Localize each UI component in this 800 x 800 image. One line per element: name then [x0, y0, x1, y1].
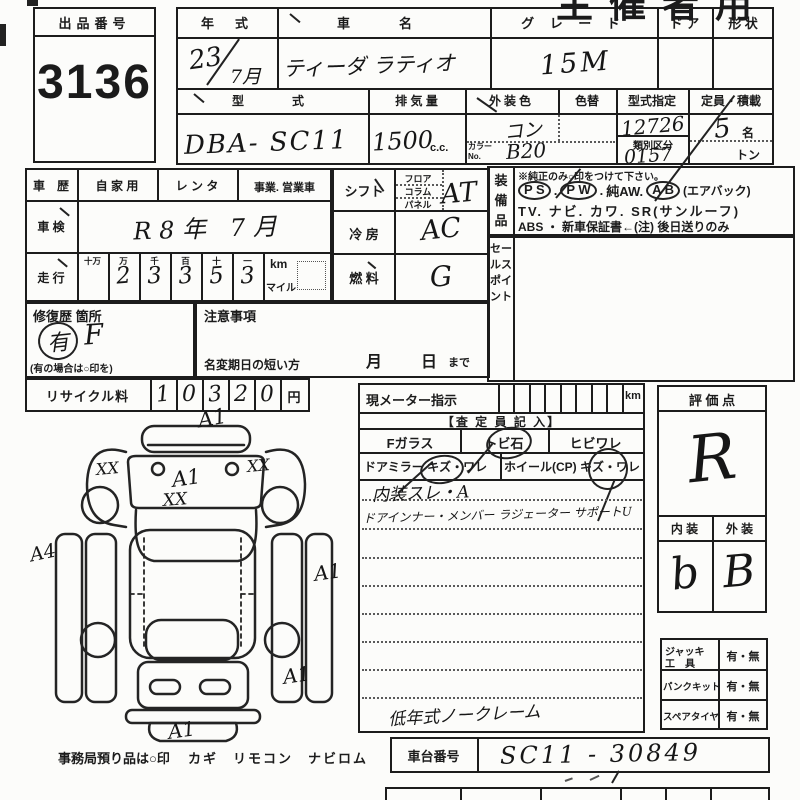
stroke-mark	[565, 777, 573, 782]
divider	[659, 410, 765, 412]
equipment-line3: ABS ・ 新車保証書←(注) 後日送りのみ	[518, 218, 729, 235]
dotted-divider	[362, 613, 642, 615]
dotted-divider	[362, 528, 642, 530]
exhibit-number-label: 出品番号	[35, 13, 154, 32]
fuel-value: G	[395, 257, 487, 296]
displacement-label: 排 気 量	[368, 92, 465, 109]
damage-mark-windshield2: XX	[162, 489, 188, 511]
door-label: ド ア	[657, 13, 712, 32]
car-name-value: ティーダ ラティオ	[283, 47, 456, 83]
divider	[513, 168, 515, 234]
equipment-label: 装備品	[489, 171, 513, 231]
stroke-mark	[590, 775, 600, 781]
divider	[500, 454, 502, 479]
equipment-ab-note: (エアバック)	[683, 182, 751, 199]
capacity-unit: 名	[742, 124, 754, 141]
puncture-kit-label: パンクキット	[663, 679, 720, 693]
meter-label: 現メーター指示	[366, 390, 457, 409]
divider	[575, 385, 577, 412]
exhibit-number: 3136	[33, 55, 156, 110]
sales-point-box	[487, 236, 795, 382]
jack-value: 有・無	[718, 648, 768, 664]
owner-private: 自 家 用	[77, 177, 157, 194]
year-label: 年 式	[176, 13, 277, 32]
mileage-label: 走 行	[25, 269, 77, 286]
divider	[513, 238, 515, 380]
exterior-grade: B	[712, 544, 766, 599]
shift-floor: フロア	[396, 172, 440, 185]
divider	[27, 200, 330, 202]
chassis-vin: SC11 - 30849	[500, 738, 702, 770]
chassis-label: 車台番号	[390, 746, 477, 765]
puncture-kit-value: 有・無	[718, 678, 768, 694]
digit-header: 十万	[77, 255, 108, 267]
dotted-divider	[558, 115, 560, 141]
equipment-ps-circled: P S	[518, 181, 551, 200]
repair-note: (有の場合は○印を)	[30, 360, 113, 375]
damage-mark-front: A1	[196, 404, 228, 433]
spare-tire-value: 有・無	[718, 708, 768, 724]
divider	[544, 385, 546, 412]
auction-sheet: 主催者用 出品番号 3136 年 式 車 名 グ レ ー ド ド ア 形 状 2…	[0, 0, 800, 800]
type-designation-label: 型式指定	[616, 92, 688, 109]
front-glass-label: Fガラス	[360, 433, 460, 452]
recycle-digit: 0	[176, 382, 202, 407]
ac-label: 冷 房	[334, 224, 394, 243]
mile-unit: マイル	[266, 279, 296, 294]
divider	[178, 37, 772, 39]
shift-column: コラム	[396, 185, 440, 198]
damage-mark-mirror-left: XX	[95, 458, 119, 479]
divider	[513, 385, 515, 412]
dotted-divider	[362, 557, 642, 559]
damage-mark-side-right: A1	[312, 558, 342, 586]
unit-checkbox	[297, 261, 326, 290]
shift-label: シフト	[334, 181, 394, 200]
divider	[334, 253, 488, 255]
caution-label: 注意事項	[204, 306, 256, 325]
owner-rental: レ ン タ	[157, 177, 237, 194]
caution-month: 月	[366, 348, 382, 372]
recycle-label: リサイクル料	[27, 386, 148, 405]
shape-label: 形 状	[712, 13, 774, 32]
shift-value: AT	[440, 176, 479, 210]
car-name-label: 車 名	[277, 13, 490, 32]
km-unit: km	[270, 257, 287, 271]
divider	[606, 385, 608, 412]
divider	[477, 739, 479, 771]
mileage-digit: 5	[200, 262, 233, 290]
load-unit: トン	[736, 146, 760, 163]
shaken-label: 車 検	[25, 218, 77, 235]
divider	[263, 254, 265, 300]
divider	[620, 789, 622, 800]
damage-mark-rear-right: A1	[281, 661, 311, 689]
divider	[622, 385, 624, 412]
fuel-label: 燃 料	[334, 268, 394, 287]
spare-tire-label: スペアタイヤ	[663, 709, 719, 723]
divider	[662, 699, 766, 701]
yen-unit: 円	[280, 387, 308, 406]
repair-letter: F	[83, 317, 105, 351]
dotted-divider	[362, 585, 642, 587]
dotted-divider	[362, 669, 642, 671]
divider	[665, 789, 667, 800]
color-no-label: カラーNo.	[468, 142, 498, 161]
model-label: 型 式	[176, 92, 368, 109]
grade-label: グ レ ー ド	[490, 13, 657, 32]
equipment-aw: 純AW.	[606, 181, 643, 200]
displacement-unit: c.c.	[430, 142, 448, 154]
evaluation-grade: R	[668, 418, 755, 500]
model-value: DBA- SC11	[184, 125, 350, 161]
divider	[710, 789, 712, 800]
scan-artifact	[27, 0, 38, 6]
grade-value: 15M	[539, 46, 612, 82]
divider	[560, 385, 562, 412]
jack-label-line2: 工 具	[665, 655, 695, 670]
month-value: 7月	[230, 62, 261, 89]
scan-artifact	[0, 24, 6, 46]
assessor-note-1: 内装スレ・A	[372, 477, 470, 505]
history-label: 車 歴	[25, 177, 77, 194]
color-no-value: B20	[505, 138, 546, 164]
sales-point-label: セールスポイント	[490, 242, 512, 306]
name-change-label: 名変期日の短い方	[204, 356, 300, 373]
divider	[178, 88, 772, 90]
partial-row	[385, 787, 770, 800]
equipment-line1: P S. P W. 純AW. A B (エアバック)	[518, 181, 751, 200]
damage-mark-rear-bottom: A1	[166, 716, 196, 744]
divider	[27, 252, 330, 254]
recycle-digit: 2	[228, 382, 254, 407]
recycle-digit: 1	[149, 381, 177, 409]
dotted-divider	[362, 641, 642, 643]
owner-business: 事業. 営業車	[237, 179, 332, 195]
crack-label: ヒビワレ	[548, 433, 643, 452]
divider	[591, 385, 593, 412]
divider	[529, 385, 531, 412]
caution-day: 日	[421, 348, 437, 372]
damage-mark-mirror-right: XX	[246, 455, 270, 476]
divider	[460, 789, 462, 800]
displacement-value: 1500	[371, 125, 433, 156]
mileage-digit: 2	[107, 262, 140, 291]
mileage-digit: 3	[231, 262, 264, 291]
mileage-digit: 3	[138, 262, 171, 290]
divider	[540, 789, 542, 800]
interior-grade: b	[657, 545, 714, 602]
interior-label: 内 装	[657, 520, 712, 537]
shift-panel: パネル	[396, 198, 440, 211]
divider	[498, 385, 500, 412]
recycle-digit: 0	[253, 381, 281, 408]
class-value: 0157	[623, 143, 673, 168]
mileage-digit: 3	[169, 261, 203, 290]
meter-km-unit: km	[625, 390, 641, 402]
divider	[35, 35, 154, 37]
color-change-label: 色替	[558, 92, 616, 109]
year-value: 23	[187, 42, 224, 76]
damage-mark-windshield: A1	[170, 464, 202, 492]
storage-items: カギ リモコン ナビロム	[188, 748, 368, 767]
evaluation-label: 評 価 点	[659, 390, 765, 409]
caution-until: まで	[448, 354, 470, 370]
storage-note: 事務局預り品は○印	[58, 748, 170, 767]
equipment-ab-circled: A B	[646, 181, 680, 200]
exterior-label: 外 装	[712, 520, 767, 537]
